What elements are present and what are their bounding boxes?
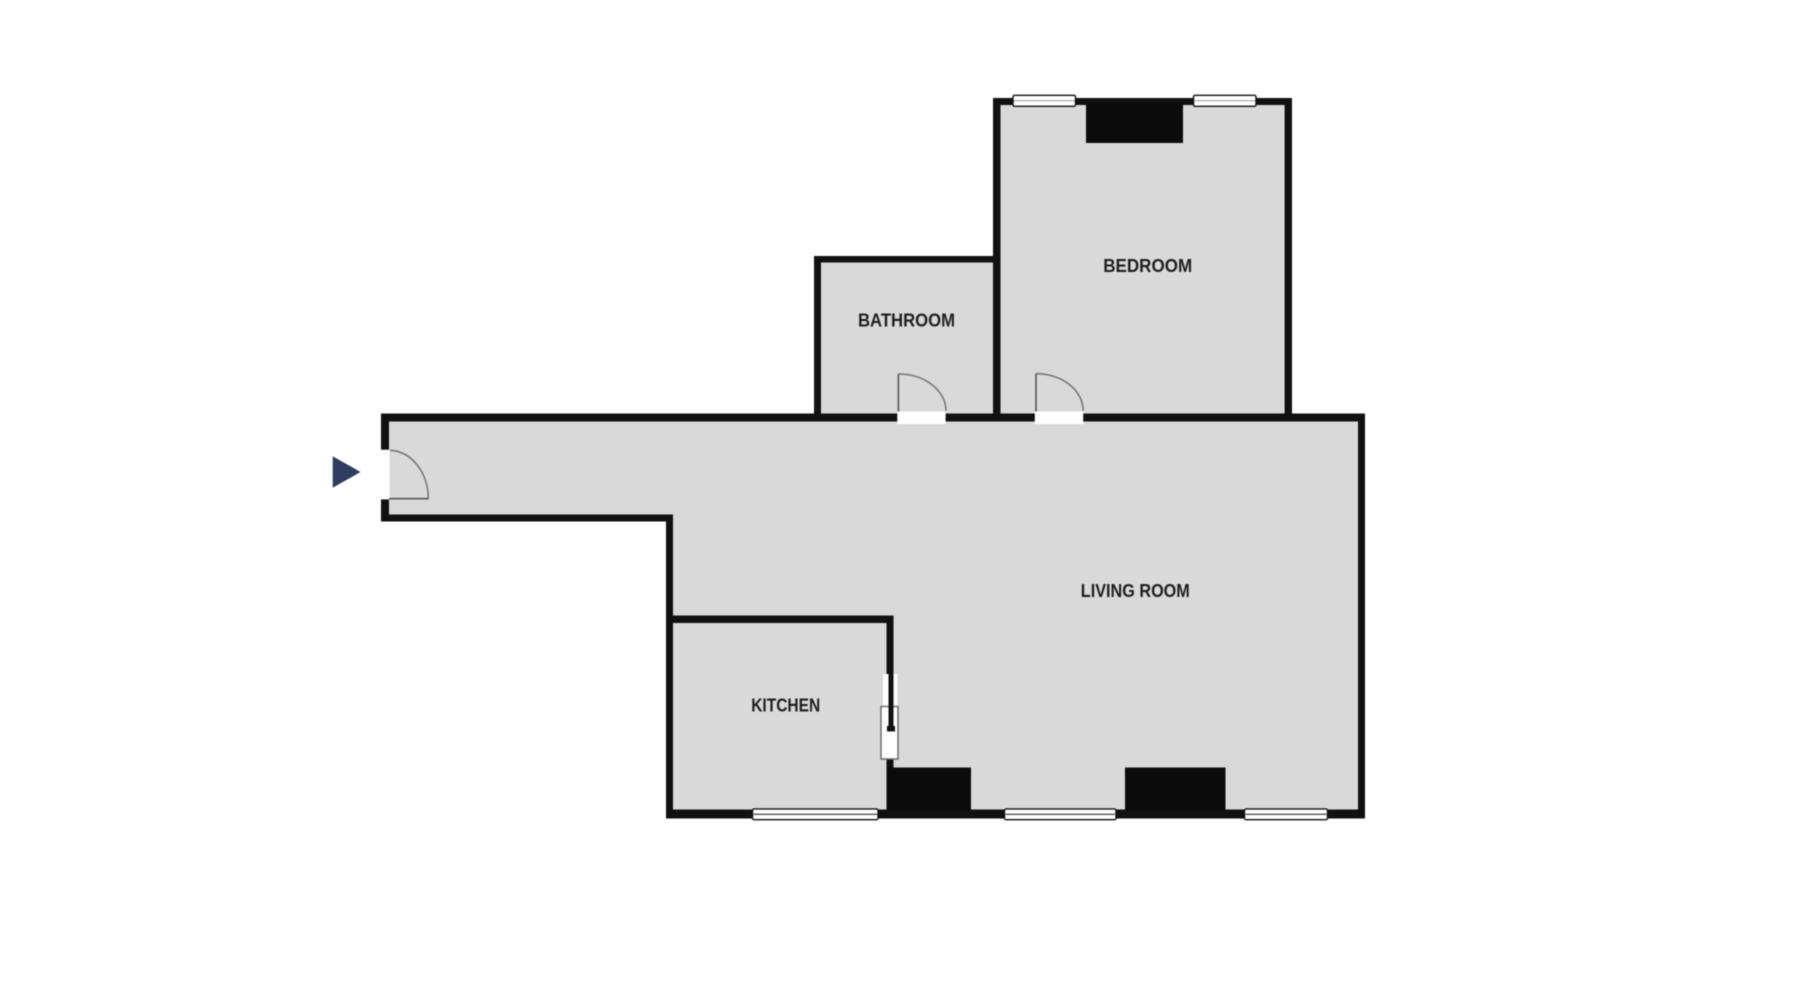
svg-text:BEDROOM: BEDROOM bbox=[1103, 256, 1192, 276]
svg-text:BATHROOM: BATHROOM bbox=[858, 310, 955, 330]
svg-text:LIVING ROOM: LIVING ROOM bbox=[1081, 581, 1190, 601]
svg-text:KITCHEN: KITCHEN bbox=[751, 695, 820, 715]
